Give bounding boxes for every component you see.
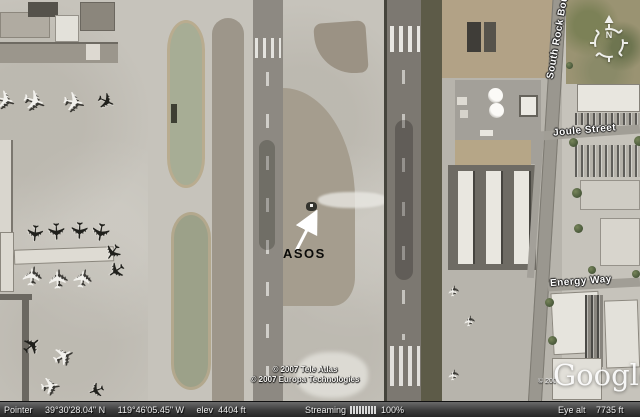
- airport-building: [457, 97, 467, 105]
- copyright-attribution: © 2007 Tele Atlas © 2007 Europa Technolo…: [200, 365, 410, 385]
- terminal-building: [55, 15, 79, 42]
- copyright-line2: © 2007 Europa Technologies: [200, 375, 410, 385]
- tree: [566, 62, 573, 69]
- runway-skid-marks: [395, 120, 413, 280]
- compass-north-letter: N: [606, 30, 613, 40]
- tree: [548, 336, 557, 345]
- compass-north-arrow-icon: [605, 15, 614, 23]
- streaming-progress-bars: [350, 406, 377, 414]
- terminal-concourse-north: [0, 42, 118, 63]
- hangar-roof: [458, 171, 473, 264]
- google-watermark-logo: Google: [553, 358, 640, 392]
- runway-threshold-marking: [255, 38, 281, 58]
- pointer-label: Pointer: [4, 405, 33, 415]
- commercial-building: [577, 84, 640, 112]
- airport-building: [480, 130, 493, 136]
- commercial-building: [580, 180, 640, 210]
- tree: [588, 266, 596, 274]
- pavement-stain: [318, 192, 388, 208]
- streaming-percent: 100%: [381, 405, 404, 415]
- tree: [634, 136, 640, 146]
- pointer-longitude: 119°46'05.45" W: [118, 405, 184, 415]
- terminal-building: [28, 2, 58, 17]
- runway-west: [253, 0, 283, 401]
- dirt-field: [442, 0, 562, 78]
- hangar-roof: [514, 171, 529, 264]
- asos-label: ASOS: [283, 246, 326, 261]
- airport-building: [0, 232, 14, 292]
- copyright-line1: © 2007 Tele Atlas: [200, 365, 410, 375]
- tree: [569, 138, 578, 147]
- airport-building: [460, 110, 468, 118]
- elev-value: 4404 ft: [218, 405, 246, 415]
- eye-alt-value: 7735 ft: [596, 405, 624, 415]
- pointer-latitude: 39°30'28.04" N: [45, 405, 105, 415]
- status-bar: Pointer 39°30'28.04" N 119°46'05.45" W e…: [0, 401, 640, 417]
- asos-station-detail: [310, 204, 313, 207]
- airport-building: [519, 95, 538, 117]
- terminal-roof-detail: [86, 44, 100, 60]
- tree: [574, 224, 583, 233]
- infield-marking: [171, 104, 177, 123]
- runway-shoulder-strip: [421, 0, 442, 401]
- airport-building: [484, 22, 496, 52]
- runway-east: [384, 0, 421, 401]
- tree: [545, 298, 554, 307]
- compass-control[interactable]: N: [584, 14, 634, 66]
- service-road: [22, 298, 29, 401]
- parallel-taxiway: [212, 18, 244, 401]
- parking-lot: [585, 295, 603, 367]
- dirt-field: [455, 140, 531, 166]
- parking-lot: [575, 145, 640, 177]
- tree: [632, 270, 640, 278]
- hangar-roof: [486, 171, 501, 264]
- fuel-tank: [489, 103, 504, 118]
- elev-label: elev: [197, 405, 214, 415]
- grass-infield: [171, 212, 211, 390]
- streaming-status: Streaming100%: [305, 405, 404, 415]
- pointer-coordinates: Pointer 39°30'28.04" N 119°46'05.45" W e…: [4, 405, 246, 415]
- eye-altitude: Eye alt 7735 ft: [558, 405, 624, 415]
- airport-building: [0, 140, 13, 232]
- google-earth-window: ✈ ✈ ✈ ✈ ✈ ✈ ✈ ✈ ✈ ✈ ✈ ✈ ✈ ✈ ✈ ✈ ✈: [0, 0, 640, 417]
- eye-alt-label: Eye alt: [558, 405, 586, 415]
- commercial-building: [600, 218, 640, 266]
- streaming-label: Streaming: [305, 405, 346, 415]
- satellite-map[interactable]: ✈ ✈ ✈ ✈ ✈ ✈ ✈ ✈ ✈ ✈ ✈ ✈ ✈ ✈ ✈ ✈ ✈: [0, 0, 640, 401]
- tree: [572, 188, 582, 198]
- runway-skid-marks: [259, 140, 275, 250]
- runway-threshold-marking: [390, 26, 420, 52]
- fuel-tank: [488, 88, 503, 103]
- terminal-building: [80, 2, 115, 31]
- airport-building: [467, 22, 481, 52]
